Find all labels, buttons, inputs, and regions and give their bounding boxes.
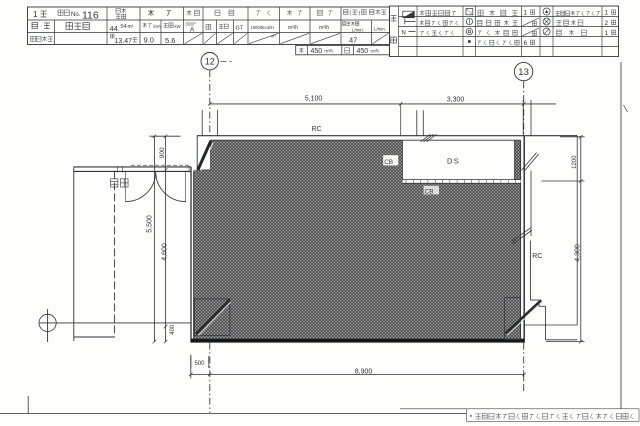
svg-text:4,600: 4,600 [161,243,168,261]
svg-text:CB: CB [425,188,434,195]
svg-text:12: 12 [205,57,215,67]
svg-text:450: 450 [311,48,323,55]
svg-text:6: 6 [524,40,528,47]
svg-text:54: 54 [121,24,127,30]
svg-text:1: 1 [524,10,528,17]
svg-text:DS: DS [447,156,460,165]
svg-text:13: 13 [518,67,529,78]
svg-text:116: 116 [82,10,99,22]
svg-text:GT: GT [236,26,244,32]
svg-text:1: 1 [605,10,609,17]
svg-text:8,900: 8,900 [355,368,373,375]
svg-text:*: * [470,414,473,421]
svg-text:CB: CB [384,159,393,166]
svg-text:10000kcal/H: 10000kcal/H [251,25,274,30]
svg-text:4,300: 4,300 [575,244,582,262]
svg-text:1200: 1200 [572,155,578,169]
svg-text:L/min.: L/min. [352,28,364,33]
svg-text:5.6: 5.6 [165,36,175,45]
svg-text:m³/h: m³/h [325,49,334,54]
svg-text:No.: No. [71,12,81,18]
svg-text:kVA: kVA [154,24,162,29]
svg-text:m³/h: m³/h [288,25,298,31]
svg-text:N: N [402,30,406,36]
svg-text:3,300: 3,300 [447,97,465,104]
svg-text:9.0: 9.0 [144,36,154,45]
svg-text:RC: RC [532,253,542,260]
svg-text:5,100: 5,100 [305,95,323,102]
svg-text:1: 1 [33,10,38,19]
svg-text:kW: kW [175,24,181,29]
svg-text:500: 500 [194,361,205,367]
svg-text:2: 2 [605,20,609,27]
svg-text:A: A [190,27,195,34]
svg-text:m³: m³ [271,34,276,39]
svg-text:m²: m² [128,24,134,30]
svg-text:44.: 44. [110,24,120,33]
svg-text:400: 400 [170,324,176,335]
svg-text:13.47: 13.47 [115,38,133,45]
svg-text:RC: RC [312,126,322,133]
svg-text:m³/h: m³/h [371,49,380,54]
svg-text:47: 47 [349,36,357,45]
svg-text:5,500: 5,500 [146,215,153,233]
svg-text:450: 450 [357,48,369,55]
svg-text:1: 1 [605,30,609,37]
svg-text:m³/h: m³/h [319,25,329,31]
svg-text:L/min.: L/min. [374,27,386,32]
svg-text:900: 900 [159,147,166,158]
